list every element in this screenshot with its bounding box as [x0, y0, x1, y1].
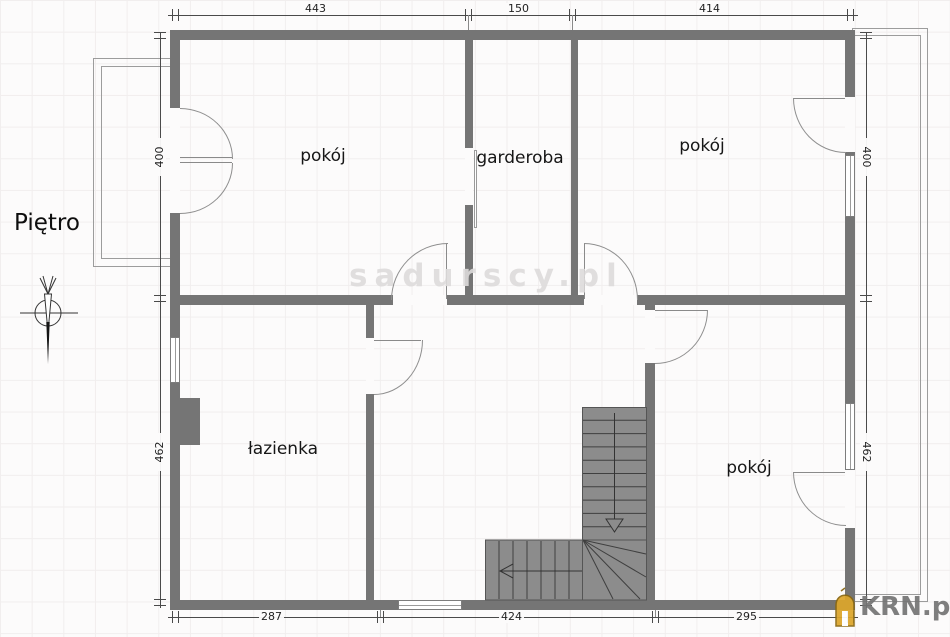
dim-bottom-1: 287 — [259, 611, 284, 623]
dim-line-top — [168, 15, 858, 16]
wall-middle-right — [637, 295, 845, 305]
opening-terrace-door-br — [845, 470, 855, 528]
watermark-sadurscy: sadurscy.pl — [349, 258, 624, 294]
terrace-door-br-arc — [793, 472, 846, 526]
krn-logo: KRN.pl — [831, 586, 950, 628]
opening-terrace-door-tr — [845, 97, 855, 152]
wall-bathroom-upper — [366, 305, 374, 338]
opening-wardrobe-door — [465, 148, 473, 205]
dim-left-2: 462 — [154, 433, 166, 471]
terrace-outline-inner — [852, 35, 921, 595]
wall-bathroom-lower — [366, 394, 374, 600]
window-bathroom-left — [170, 337, 180, 383]
balcony-door-arc-lower — [180, 163, 233, 214]
dim-bottom-3: 295 — [734, 611, 759, 623]
bathroom-door-arc — [374, 340, 423, 395]
dim-top-3: 414 — [697, 3, 722, 15]
floor-title: Piętro — [14, 210, 80, 236]
chimney-block — [180, 398, 200, 445]
window-room-tr-right — [845, 155, 855, 217]
wall-middle-left — [180, 295, 393, 305]
balcony-outline-inner — [101, 66, 178, 259]
room-label-top-left: pokój — [300, 146, 346, 166]
room-br-door-arc — [655, 310, 708, 364]
north-arrow-icon — [18, 274, 80, 368]
dim-top-1: 443 — [303, 3, 328, 15]
dim-left-1: 400 — [154, 138, 166, 176]
wall-wardrobe-right — [571, 40, 578, 295]
dim-line-right — [866, 32, 867, 608]
room-label-bottom-right: pokój — [726, 458, 772, 478]
wall-exterior-top — [170, 30, 855, 40]
staircase — [485, 407, 648, 601]
dim-right-1: 400 — [860, 138, 872, 176]
window-room-br-right — [845, 403, 855, 470]
room-label-bathroom: łazienka — [248, 439, 318, 459]
wall-wardrobe-left-upper — [465, 40, 473, 148]
floor-plan-canvas: sadurscy.pl pokój garderoba pokój łazien… — [0, 0, 950, 637]
dim-right-2: 462 — [860, 433, 872, 471]
opening-bathroom-door — [366, 338, 374, 394]
opening-room-br-door — [645, 310, 655, 363]
balcony-door-arc-upper — [180, 108, 233, 159]
room-label-wardrobe: garderoba — [476, 148, 563, 168]
krn-logo-text: KRN.pl — [860, 592, 950, 622]
dim-line-left — [160, 32, 161, 608]
dim-bottom-2: 424 — [499, 611, 524, 623]
window-bottom — [398, 600, 462, 610]
wall-exterior-bottom — [170, 600, 855, 610]
room-label-top-right: pokój — [679, 136, 725, 156]
terrace-door-tr-arc — [793, 98, 846, 153]
wall-middle-center — [447, 295, 584, 305]
dim-top-2: 150 — [506, 3, 531, 15]
opening-balcony-door — [170, 108, 180, 213]
krn-house-icon — [831, 586, 859, 628]
